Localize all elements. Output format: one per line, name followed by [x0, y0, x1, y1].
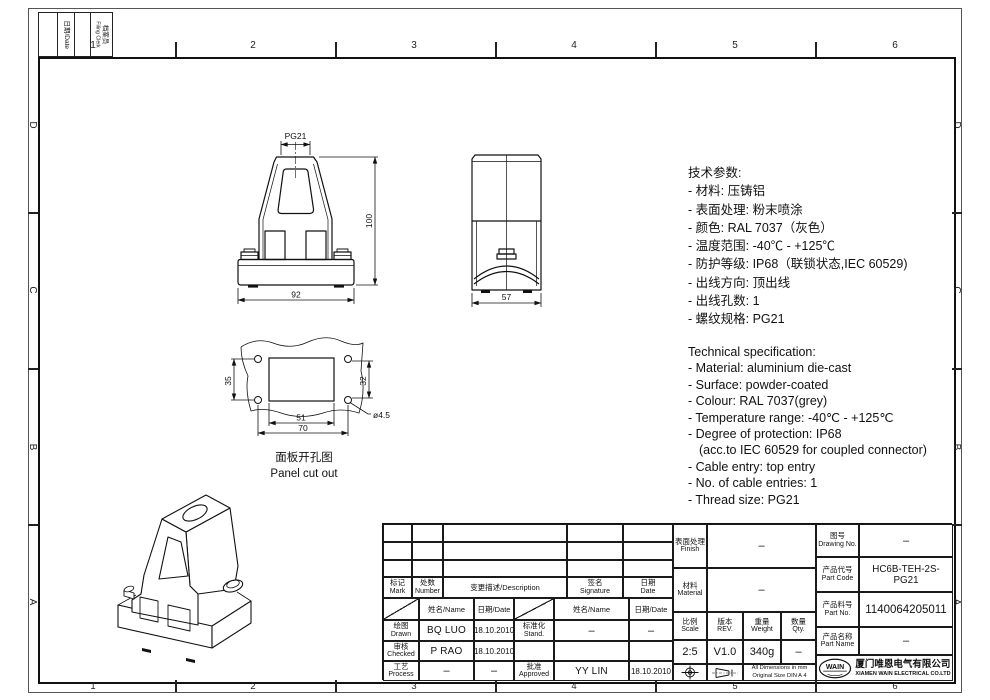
datum-target-symbol [673, 664, 707, 681]
cutout-caption-zh: 面板开孔图 [275, 450, 333, 464]
spec-en-line: - Surface: powder-coated [688, 377, 927, 393]
panel-cutout-view: 35 32 51 70 ø4.5 面板开孔图 Panel cut out [211, 331, 431, 491]
dim-hole-hspace-label: 70 [298, 423, 308, 433]
zone-col-label: 4 [567, 680, 581, 692]
row-drawn-label: 绘图Drawn [383, 620, 419, 641]
filing-empty-cell [38, 12, 58, 57]
spec-zh-line: - 防护等级: IP68（联锁状态,IEC 60529) [688, 255, 908, 273]
wain-logo-icon: WAIN [818, 657, 852, 680]
zone-tick [28, 524, 38, 526]
company-name-zh: 厦门唯恩电气有限公司 [855, 659, 950, 671]
zone-tick [175, 42, 177, 57]
zone-tick [335, 42, 337, 57]
drawn-name: BQ LUO [419, 620, 474, 641]
zone-row-label: B [26, 442, 40, 452]
dim-depth-label: 57 [502, 292, 512, 302]
drawing-no-value: – [859, 524, 953, 557]
zone-tick [495, 42, 497, 57]
zone-col-label: 3 [407, 680, 421, 692]
spec-en-line: - Colour: RAL 7037(grey) [688, 393, 927, 409]
row-stand-label: 标准化Stand. [514, 620, 554, 641]
company-name-en: XIAMEN WAIN ELECTRICAL CO.LTD [855, 671, 950, 678]
spec-zh-line: - 材料: 压铸铝 [688, 182, 908, 200]
zone-tick [655, 680, 657, 692]
filing-strip: 日期/Date 档案员 Filing Clerk [38, 12, 113, 57]
spec-en-line: - Temperature range: -40℃ - +125℃ [688, 410, 927, 426]
col-number: 处数Number [412, 577, 443, 598]
drawing-no-label: 图号Drawing No. [816, 524, 859, 557]
spec-zh-line: - 出线方向: 顶出线 [688, 274, 908, 292]
dim-thread-label: PG21 [285, 131, 307, 141]
company-cell: WAIN 厦门唯恩电气有限公司 XIAMEN WAIN ELECTRICAL C… [816, 655, 953, 681]
zone-row-label: C [950, 285, 964, 295]
zone-col-label: 4 [567, 36, 581, 54]
zone-tick [28, 368, 38, 370]
dim-width-label: 92 [291, 290, 301, 300]
drawing-sheet: 日期/Date 档案员 Filing Clerk 1 2 3 4 5 6 1 2… [0, 0, 990, 700]
dim-height-label: 100 [364, 214, 374, 228]
rev-value: V1.0 [707, 640, 743, 664]
col-date: 日期Date [623, 577, 673, 598]
zone-tick [952, 212, 962, 214]
projection-symbol [707, 664, 743, 681]
weight-value: 340g [743, 640, 781, 664]
spec-en-title: Technical specification: [688, 344, 927, 360]
zone-col-label: 2 [246, 36, 260, 54]
diagonal-cell [383, 598, 419, 620]
spec-zh-line: - 表面处理: 粉末喷涂 [688, 201, 908, 219]
zone-col-label: 1 [86, 36, 100, 54]
part-name-label: 产品名称Part Name [816, 627, 859, 655]
stand-name: – [554, 620, 629, 641]
first-angle-projection-icon [712, 666, 738, 680]
qty-value: – [781, 640, 816, 664]
checked-name: P RAO [419, 641, 474, 661]
zone-row-label: D [26, 120, 40, 130]
zone-tick [335, 680, 337, 692]
subcol-name: 姓名/Name [419, 598, 474, 620]
dim-cutout-height-label: 32 [358, 376, 368, 386]
zone-row-label: A [26, 597, 40, 607]
spec-block-en: Technical specification: - Material: alu… [688, 344, 927, 508]
dimensions-note: All Dimensions in mm Original Size DIN A… [743, 664, 816, 681]
finish-value: – [707, 524, 816, 568]
qty-label: 数量Qty. [781, 612, 816, 640]
front-view: PG21 100 92 [228, 128, 418, 318]
zone-col-label: 3 [407, 36, 421, 54]
spec-en-line: - Thread size: PG21 [688, 492, 927, 508]
spec-zh-line: - 出线孔数: 1 [688, 292, 908, 310]
isometric-view [102, 478, 292, 673]
dim-cutout-width-label: 51 [296, 413, 306, 423]
zone-tick [952, 368, 962, 370]
process-date: – [474, 661, 514, 681]
zone-row-label: D [950, 120, 964, 130]
spec-en-line: - Degree of protection: IP68 [688, 426, 927, 442]
zone-col-label: 6 [888, 680, 902, 692]
zone-tick [28, 212, 38, 214]
spec-zh-title: 技术参数: [688, 164, 908, 182]
part-no-label: 产品料号Part No. [816, 592, 859, 627]
weight-label: 重量Weight [743, 612, 781, 640]
zone-col-label: 1 [86, 680, 100, 692]
zone-tick [952, 524, 962, 526]
finish-label: 表面处理Finish [673, 524, 707, 568]
scale-label: 比例Scale [673, 612, 707, 640]
zone-tick [815, 42, 817, 57]
spec-zh-line: - 温度范围: -40℃ - +125℃ [688, 237, 908, 255]
side-view: 57 [443, 143, 568, 311]
rev-label: 版本REV. [707, 612, 743, 640]
material-label: 材料Material [673, 568, 707, 612]
checked-date: 18.10.2010 [474, 641, 514, 661]
dim-hole-dia-label: ø4.5 [373, 410, 390, 420]
zone-col-label: 6 [888, 36, 902, 54]
svg-text:WAIN: WAIN [826, 663, 844, 670]
part-code-label: 产品代号Part Code [816, 557, 859, 592]
row-checked-label: 审核Checked [383, 641, 419, 661]
spec-block-zh: 技术参数: - 材料: 压铸铝 - 表面处理: 粉末喷涂 - 颜色: RAL 7… [688, 164, 908, 329]
part-name-value: – [859, 627, 953, 655]
zone-tick [175, 680, 177, 692]
zone-tick [815, 680, 817, 692]
row-process-label: 工艺Process [383, 661, 419, 681]
stand-date: – [629, 620, 673, 641]
zone-tick [655, 42, 657, 57]
spec-en-line: (acc.to IEC 60529 for coupled connector) [688, 442, 927, 458]
col-description: 变更描述/Description [443, 577, 567, 598]
subcol-date: 日期/Date [629, 598, 673, 620]
zone-row-label: B [950, 442, 964, 452]
empty-cell [514, 641, 554, 661]
spec-en-line: - Cable entry: top entry [688, 459, 927, 475]
col-mark: 标记Mark [383, 577, 412, 598]
title-block: 标记Mark 处数Number 变更描述/Description 签名Signa… [382, 523, 952, 680]
spec-zh-line: - 螺纹规格: PG21 [688, 310, 908, 328]
drawn-date: 18.10.2010 [474, 620, 514, 641]
spec-en-line: - No. of cable entries: 1 [688, 475, 927, 491]
zone-col-label: 5 [728, 680, 742, 692]
approved-name: YY LIN [554, 661, 629, 681]
row-approved-label: 批准Approved [514, 661, 554, 681]
filing-date-cell: 日期/Date [58, 12, 75, 57]
diagonal-cell [514, 598, 554, 620]
zone-col-label: 2 [246, 680, 260, 692]
empty-cell [554, 641, 629, 661]
part-code-value: HC6B-TEH-2S-PG21 [859, 557, 953, 592]
subcol-date: 日期/Date [474, 598, 514, 620]
approved-date: 18.10.2010 [629, 661, 673, 681]
dim-hole-vspace-label: 35 [223, 376, 233, 386]
empty-cell [629, 641, 673, 661]
process-name: – [419, 661, 474, 681]
scale-value: 2:5 [673, 640, 707, 664]
crosshair-icon [680, 665, 700, 680]
material-value: – [707, 568, 816, 612]
subcol-name: 姓名/Name [554, 598, 629, 620]
col-signature: 签名Signature [567, 577, 623, 598]
zone-tick [495, 680, 497, 692]
zone-row-label: C [26, 285, 40, 295]
spec-en-line: - Material: aluminium die-cast [688, 360, 927, 376]
zone-col-label: 5 [728, 36, 742, 54]
filing-date-label: 日期/Date [62, 20, 69, 49]
part-no-value: 1140064205011 [859, 592, 953, 627]
revision-empty-rows [383, 524, 673, 577]
spec-zh-line: - 颜色: RAL 7037（灰色） [688, 219, 908, 237]
